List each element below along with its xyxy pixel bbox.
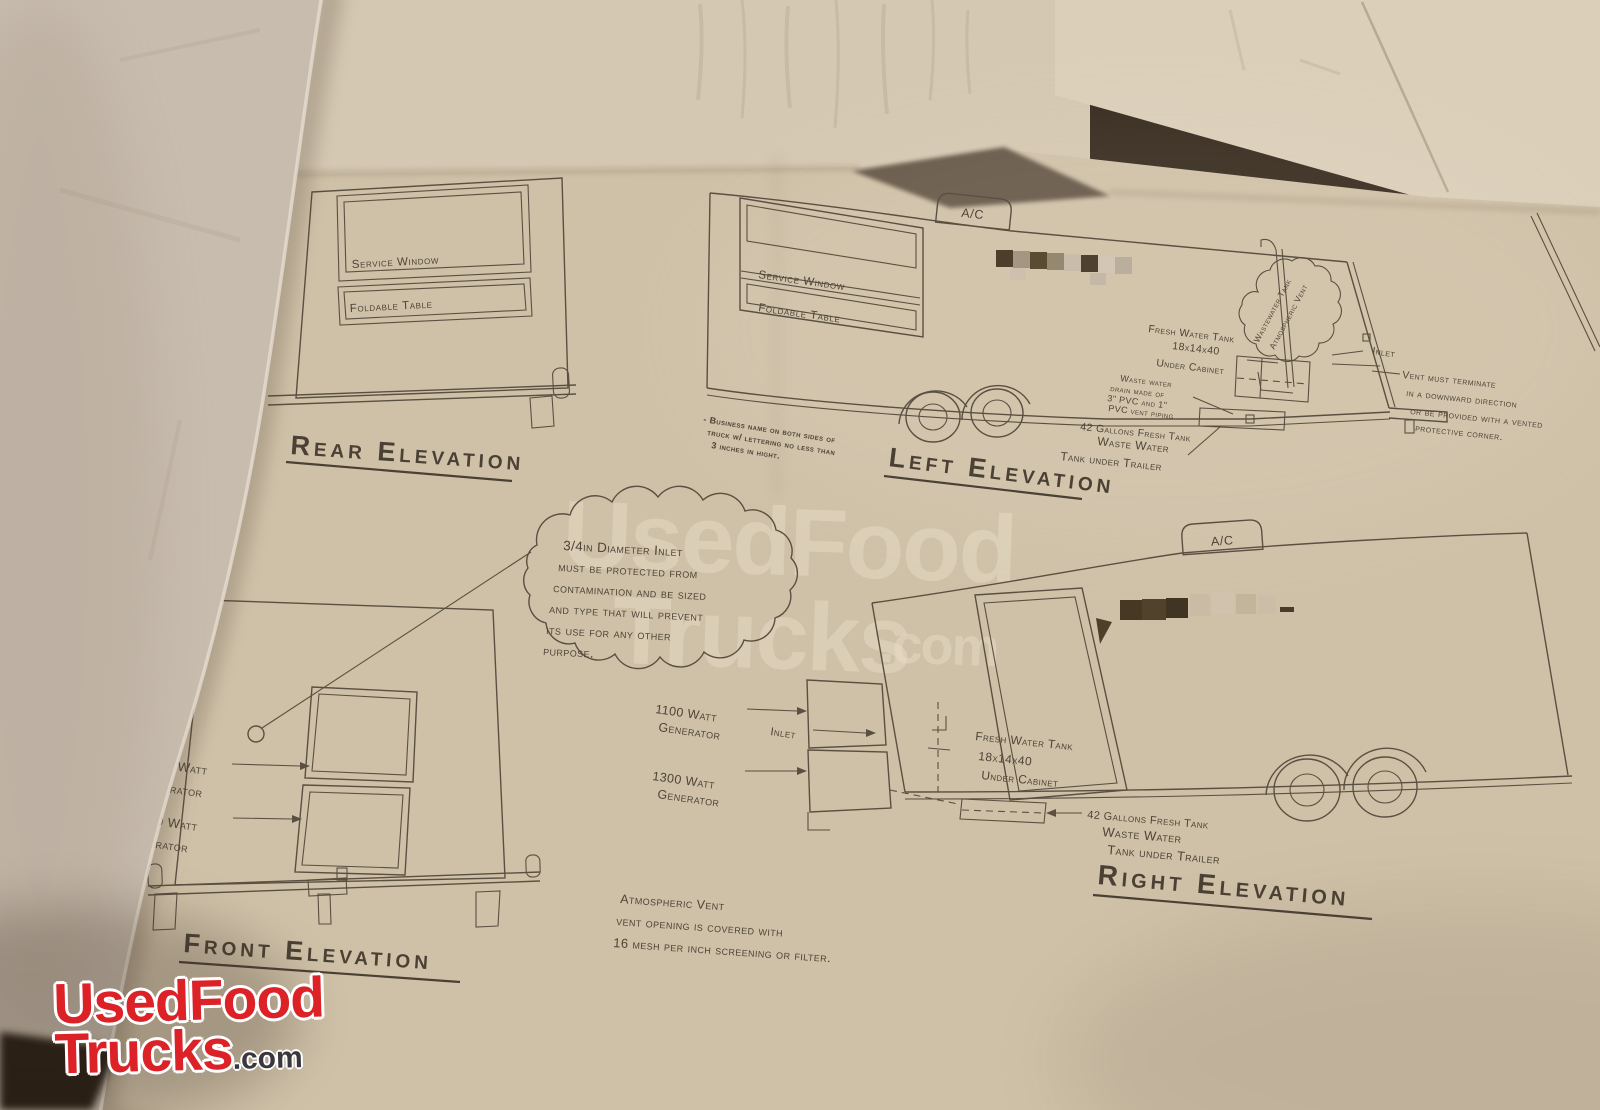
right-ac-label: A/C <box>1210 533 1234 549</box>
front-cloud-note6: purpose. <box>543 643 595 661</box>
left-ac-label: A/C <box>961 206 985 222</box>
watermark-suffix: .com <box>879 614 999 678</box>
logo-line2: Trucks <box>54 1018 233 1087</box>
highlight <box>690 110 1600 550</box>
logo-suffix: .com <box>232 1041 303 1076</box>
blueprint-canvas: UsedFood Trucks .com Service Window Fold… <box>0 0 1600 1110</box>
usedfoodtrucks-logo: UsedFood Trucks.com <box>53 972 326 1079</box>
photo-of-blueprint: UsedFood Trucks .com Service Window Fold… <box>0 0 1600 1110</box>
